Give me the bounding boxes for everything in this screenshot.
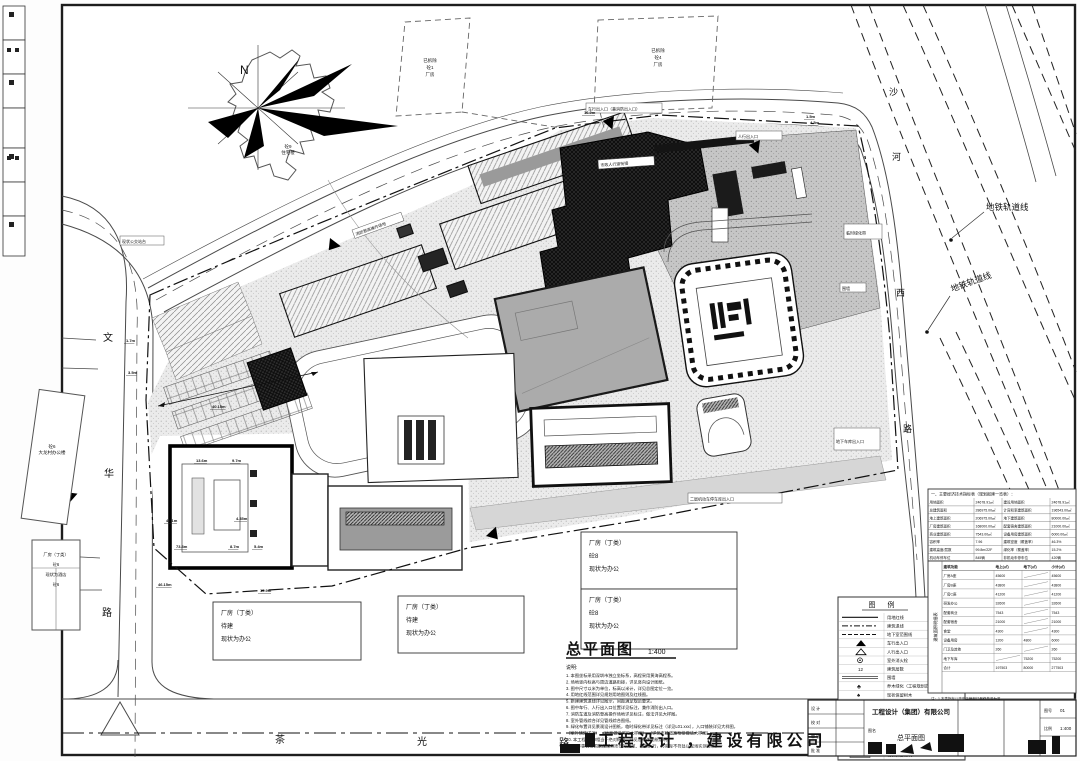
dim-label: 13.6m <box>196 458 208 463</box>
econ-cell: 地上建筑面积 <box>930 516 951 521</box>
area-cell: 75200 <box>1052 657 1062 661</box>
label-box-text: 现状为办公 <box>589 622 619 630</box>
area-cell: 43800 <box>1052 583 1062 587</box>
legend-label: 围墙 <box>887 674 895 681</box>
label-box-text: 砼8 <box>589 609 599 617</box>
annotation-box: 人行出入口 <box>736 131 782 140</box>
site-plan-drawing: N 厂房（丁类）待建现状为办公厂房（丁类）待建现状为办公厂房（丁类）砼8现状为办… <box>0 0 1080 761</box>
stamp-mark <box>868 742 882 754</box>
drawing-scale: 1:400 <box>648 649 666 656</box>
north-label: N <box>240 63 249 77</box>
hotel-label: 砼6 <box>53 561 60 567</box>
area-cell: 4300 <box>996 629 1004 633</box>
area-cell: 设备用房 <box>944 638 958 643</box>
demolished-label: 已拆除 <box>423 57 437 64</box>
stamp-mark <box>886 744 896 754</box>
area-header: 地下(㎡) <box>1024 564 1038 569</box>
legend-sym: ♣ <box>857 685 861 691</box>
revision-strip <box>3 6 25 256</box>
area-cell: 41200 <box>1052 593 1062 597</box>
econ-cell: 420辆 <box>1052 555 1062 560</box>
legend-label: 人行出入口 <box>887 648 908 655</box>
demolished-label: 厂房 <box>654 61 663 68</box>
area-cell: 41200 <box>996 593 1006 597</box>
area-cell: 厂房B座 <box>944 582 957 587</box>
area-cell: 食堂 <box>944 628 952 633</box>
village-office-label: 大龙村办公楼 <box>39 449 66 456</box>
econ-cell: 设备用房建筑面积 <box>1004 531 1032 536</box>
econ-cell: 21000.00㎡ <box>1052 523 1071 528</box>
label-box-text: 现状为办公 <box>406 629 436 637</box>
annotation-box: 车行出入口（兼消防出入口） <box>586 103 662 113</box>
drawing-number: 01 <box>1060 708 1066 713</box>
road-name-shahexi: 沙 <box>889 87 898 97</box>
road-name-wenhua: 文 <box>103 331 113 344</box>
strip-cell <box>3 74 25 108</box>
econ-cell: 168000.00㎡ <box>976 523 997 528</box>
econ-cell: 建筑密度（覆盖率） <box>1004 539 1036 544</box>
econ-cell: 绿化率（覆盖率） <box>1004 547 1032 552</box>
area-cell: 260 <box>996 648 1002 652</box>
annotation-text: 地下车库出入口 <box>836 438 864 444</box>
dim-label: 47.1m <box>166 518 178 523</box>
dim-label: 1.5m <box>806 114 816 119</box>
area-cell: 21000 <box>1052 620 1062 624</box>
area-cell: 80000 <box>1024 666 1034 670</box>
dim-label: 40.15m <box>212 404 226 409</box>
area-table-side-label: 建筑面积明细表 <box>932 612 939 642</box>
note-line: 9. 绿化布置详见景观设计图纸，临时绿化带详见标注（详见L01.xxx），入口铺… <box>566 723 738 730</box>
annotation-box: 围墙 <box>840 283 866 292</box>
note-line: 8. 室外管线综合详见管线综合图纸。 <box>566 717 633 724</box>
residential-label: 砼9 <box>284 143 291 149</box>
label-box-text: 厂房（丁类） <box>589 539 625 547</box>
econ-cell: 建设用地面积 <box>1004 500 1025 505</box>
econ-cell: 24678.91㎡ <box>976 500 995 505</box>
area-cell: 配套商业 <box>944 610 958 615</box>
econ-cell: 建筑高度/层数 <box>930 547 952 552</box>
road-name-shahexi: 路 <box>903 423 912 434</box>
econ-cell: 厂房建筑面积 <box>930 523 951 528</box>
econ-cell: 商业建筑面积 <box>930 531 951 536</box>
demolished-label: 已拆除 <box>651 47 665 54</box>
area-cell: 研发办公 <box>944 601 958 606</box>
dim-label: 73.8m <box>176 544 188 549</box>
road-name-shahexi: 河 <box>892 151 901 162</box>
area-cell: 32600 <box>1052 602 1062 606</box>
legend-label: 车行出入口 <box>887 640 908 647</box>
legend-label: 建筑层数 <box>887 666 905 673</box>
label-box-text: 现状为办公 <box>589 565 619 573</box>
annotation-text: 临时绿化带 <box>846 230 866 236</box>
area-cell: 75200 <box>1024 657 1034 661</box>
dim-label: 8.7m <box>230 544 240 549</box>
dim-label: 3.5m <box>128 370 138 375</box>
scale-value: 1:400 <box>1060 726 1072 731</box>
econ-cell: 地下建筑面积 <box>1004 516 1025 521</box>
drawing-name-label: 图名 <box>868 727 876 733</box>
strip-cell <box>3 108 25 148</box>
dim-label: 5.4m <box>254 544 264 549</box>
annotation-box: 临时绿化带 <box>844 224 882 239</box>
annotation-box: 二层机动车停车库出入口 <box>688 493 782 503</box>
legend-label: 用地红线 <box>887 614 905 621</box>
area-header: 建筑功能 <box>943 564 959 569</box>
label-box-text: 待建 <box>406 616 418 624</box>
econ-cell: 24678.91㎡ <box>1052 500 1071 505</box>
dim-label: 9.7m <box>232 458 242 463</box>
area-cell: 1200 <box>996 639 1004 643</box>
demolished-label: 厂房 <box>426 71 435 78</box>
area-cell: 43800 <box>996 583 1006 587</box>
subway-label: 地铁轨道线 <box>986 202 1029 212</box>
legend-label: 室外消火栓 <box>887 657 909 664</box>
annotation-text: 现状公交站台 <box>122 238 146 244</box>
notes-heading: 说明: <box>566 664 577 671</box>
demolished-label: 砼1 <box>426 64 433 70</box>
road-name-chaguang: 光 <box>417 735 427 748</box>
strip-cell <box>3 182 25 216</box>
note-line: 4. 用地红线范围详见规划用地图则及红线图。 <box>566 691 650 698</box>
note-line: 2. 场地竖向标高与周边道路衔接，详见竖向设计图纸。 <box>566 678 667 685</box>
label-box-text: 现状为办公 <box>221 635 251 643</box>
strip-cell <box>3 6 25 40</box>
drawing-name: 总平面图 <box>897 733 925 742</box>
hotel-label: 砼6 <box>53 581 60 587</box>
dim-label: 1.7m <box>126 338 136 343</box>
econ-cell: 非机动车停车位 <box>1004 555 1029 560</box>
econ-cell: 80000.00㎡ <box>1052 516 1071 521</box>
legend-label: 建筑退线 <box>887 623 905 630</box>
econ-cell: 7.96 <box>976 540 983 544</box>
strip-cell <box>3 148 25 182</box>
note-line: 3. 图中尺寸以米为单位，标高以米计，详见总图定位一览。 <box>566 685 675 692</box>
area-cell: 配套宿舍 <box>944 619 958 624</box>
label-box-text: 砼8 <box>589 552 599 560</box>
area-cell: 厂房A座 <box>944 573 957 578</box>
area-header: 地上(㎡) <box>996 564 1010 569</box>
dim-label: 46.15m <box>158 582 172 587</box>
dim-label: 10.9m <box>260 588 272 593</box>
econ-cell: 配套宿舍建筑面积 <box>1004 523 1032 528</box>
annotation-box: 地下车库出入口 <box>834 428 880 450</box>
village-office-label: 砼6 <box>48 443 55 449</box>
technical-tables: 一、主要经济技术指标表（规划报建一览表）： 用地面积24678.91㎡建设用地面… <box>928 489 1076 718</box>
area-header: 小计(㎡) <box>1051 564 1066 569</box>
stamp-mark <box>938 734 964 752</box>
legend-title: 图 例 <box>869 600 900 609</box>
dim-label: 4.5m <box>810 120 820 125</box>
econ-cell: 845辆 <box>976 555 986 560</box>
econ-cell: 机动车停车位 <box>930 555 951 560</box>
company-name: 工程设计（集团）有限公司 <box>872 707 950 716</box>
road-name-wenhua: 路 <box>102 606 112 619</box>
site-plan-sheet: N 厂房（丁类）待建现状为办公厂房（丁类）待建现状为办公厂房（丁类）砼8现状为办… <box>0 0 1080 761</box>
scale-label: 比例 <box>1044 725 1052 731</box>
econ-cell: 用地面积 <box>930 500 944 505</box>
number-label: 图号 <box>1044 707 1052 713</box>
area-cell: 合计 <box>944 665 952 670</box>
dim-label: 16.9m <box>584 110 596 115</box>
hotel-label: 厂房（丁类） <box>43 551 68 558</box>
stamp-mark <box>1052 736 1060 754</box>
area-cell: 7543 <box>996 611 1004 615</box>
econ-cell: 容积率 <box>930 539 941 544</box>
hotel-label: 现状为酒店 <box>46 571 67 578</box>
area-cell: 地下车库 <box>944 656 958 661</box>
econ-cell: 99.8m/22F <box>976 548 993 552</box>
road-name-wenhua: 华 <box>104 467 114 480</box>
legend-label: 现状保留树木 <box>887 691 913 698</box>
area-cell: 门卫及其他 <box>944 647 962 652</box>
label-box-text: 厂房（丁类） <box>406 603 442 611</box>
stamp-mark <box>1028 740 1046 754</box>
econ-cell: 计容积率建筑面积 <box>1004 508 1032 513</box>
label-box-text: 待建 <box>221 622 233 630</box>
annotation-text: 围墙 <box>842 285 850 291</box>
annotation-text: 车行出入口（兼消防出入口） <box>588 105 640 111</box>
sign-row-label: 校 对 <box>811 719 820 725</box>
stadium-structure <box>672 250 806 389</box>
econ-cell: 6000.00㎡ <box>1052 531 1069 536</box>
sign-row-label: 设 计 <box>811 705 820 711</box>
residential-label: 住宅楼 <box>281 149 295 156</box>
annotation-text: 人行出入口 <box>738 133 758 139</box>
legend-sym: 12 <box>858 667 864 672</box>
legend-label: 地下室范围线 <box>887 631 913 638</box>
note-line: 6. 图中车行、人行出入口位置详见标注，兼作消防出入口。 <box>566 704 675 711</box>
econ-cell: 7543.00㎡ <box>976 531 993 536</box>
dim-label: 4.35m <box>236 516 248 521</box>
area-cell: 45600 <box>1052 574 1062 578</box>
note-line: 1. 本图坐标采用深圳市独立坐标系，高程采用黄海高程系。 <box>566 672 675 679</box>
area-cell: 260 <box>1052 648 1058 652</box>
econ-cell: 286975.00㎡ <box>976 508 997 513</box>
area-cell: 32600 <box>996 602 1006 606</box>
area-cell: 厂房C座 <box>944 592 958 597</box>
stamp-text: 工程设计 ，建设有限公司 <box>598 731 826 750</box>
econ-cell: 15.2% <box>1052 548 1062 552</box>
econ-cell: 206975.00㎡ <box>976 516 997 521</box>
area-cell: 7543 <box>1052 611 1060 615</box>
area-cell: 6000 <box>1052 639 1060 643</box>
strip-cell <box>3 40 25 74</box>
econ-cell: 46.3% <box>1052 540 1062 544</box>
note-line: 7. 消防车道及消防登高操作场地详见标注，做法详见大样图。 <box>566 710 680 717</box>
annotation-text: 二层机动车停车库出入口 <box>690 495 734 501</box>
annotation-box: 现状公交站台 <box>120 236 164 245</box>
label-box-text: 厂房（丁类） <box>221 609 257 617</box>
area-cell: 197503 <box>996 666 1008 670</box>
label-box-text: 厂房（丁类） <box>589 596 625 604</box>
econ-cell: 总建筑面积 <box>930 508 948 513</box>
note-line: 5. 新建建筑退线详见图示，间距满足规范要求。 <box>566 698 654 705</box>
demolished-label: 砼4 <box>654 54 661 60</box>
econ-cell: 196543.00㎡ <box>1052 508 1073 513</box>
area-cell: 4300 <box>1052 629 1060 633</box>
area-cell: 277503 <box>1052 666 1064 670</box>
stamp-mark <box>560 744 580 753</box>
area-cell: 4800 <box>1024 639 1032 643</box>
econ-table-header: 一、主要经济技术指标表（规划报建一览表）： <box>931 491 1015 497</box>
road-name-chaguang: 茶 <box>275 733 285 746</box>
road-name-shahexi: 西 <box>896 288 905 298</box>
drawing-title: 总平面图 <box>566 640 634 658</box>
area-cell: 21000 <box>996 620 1006 624</box>
area-cell: 45600 <box>996 574 1006 578</box>
stamp-mark <box>585 733 595 747</box>
